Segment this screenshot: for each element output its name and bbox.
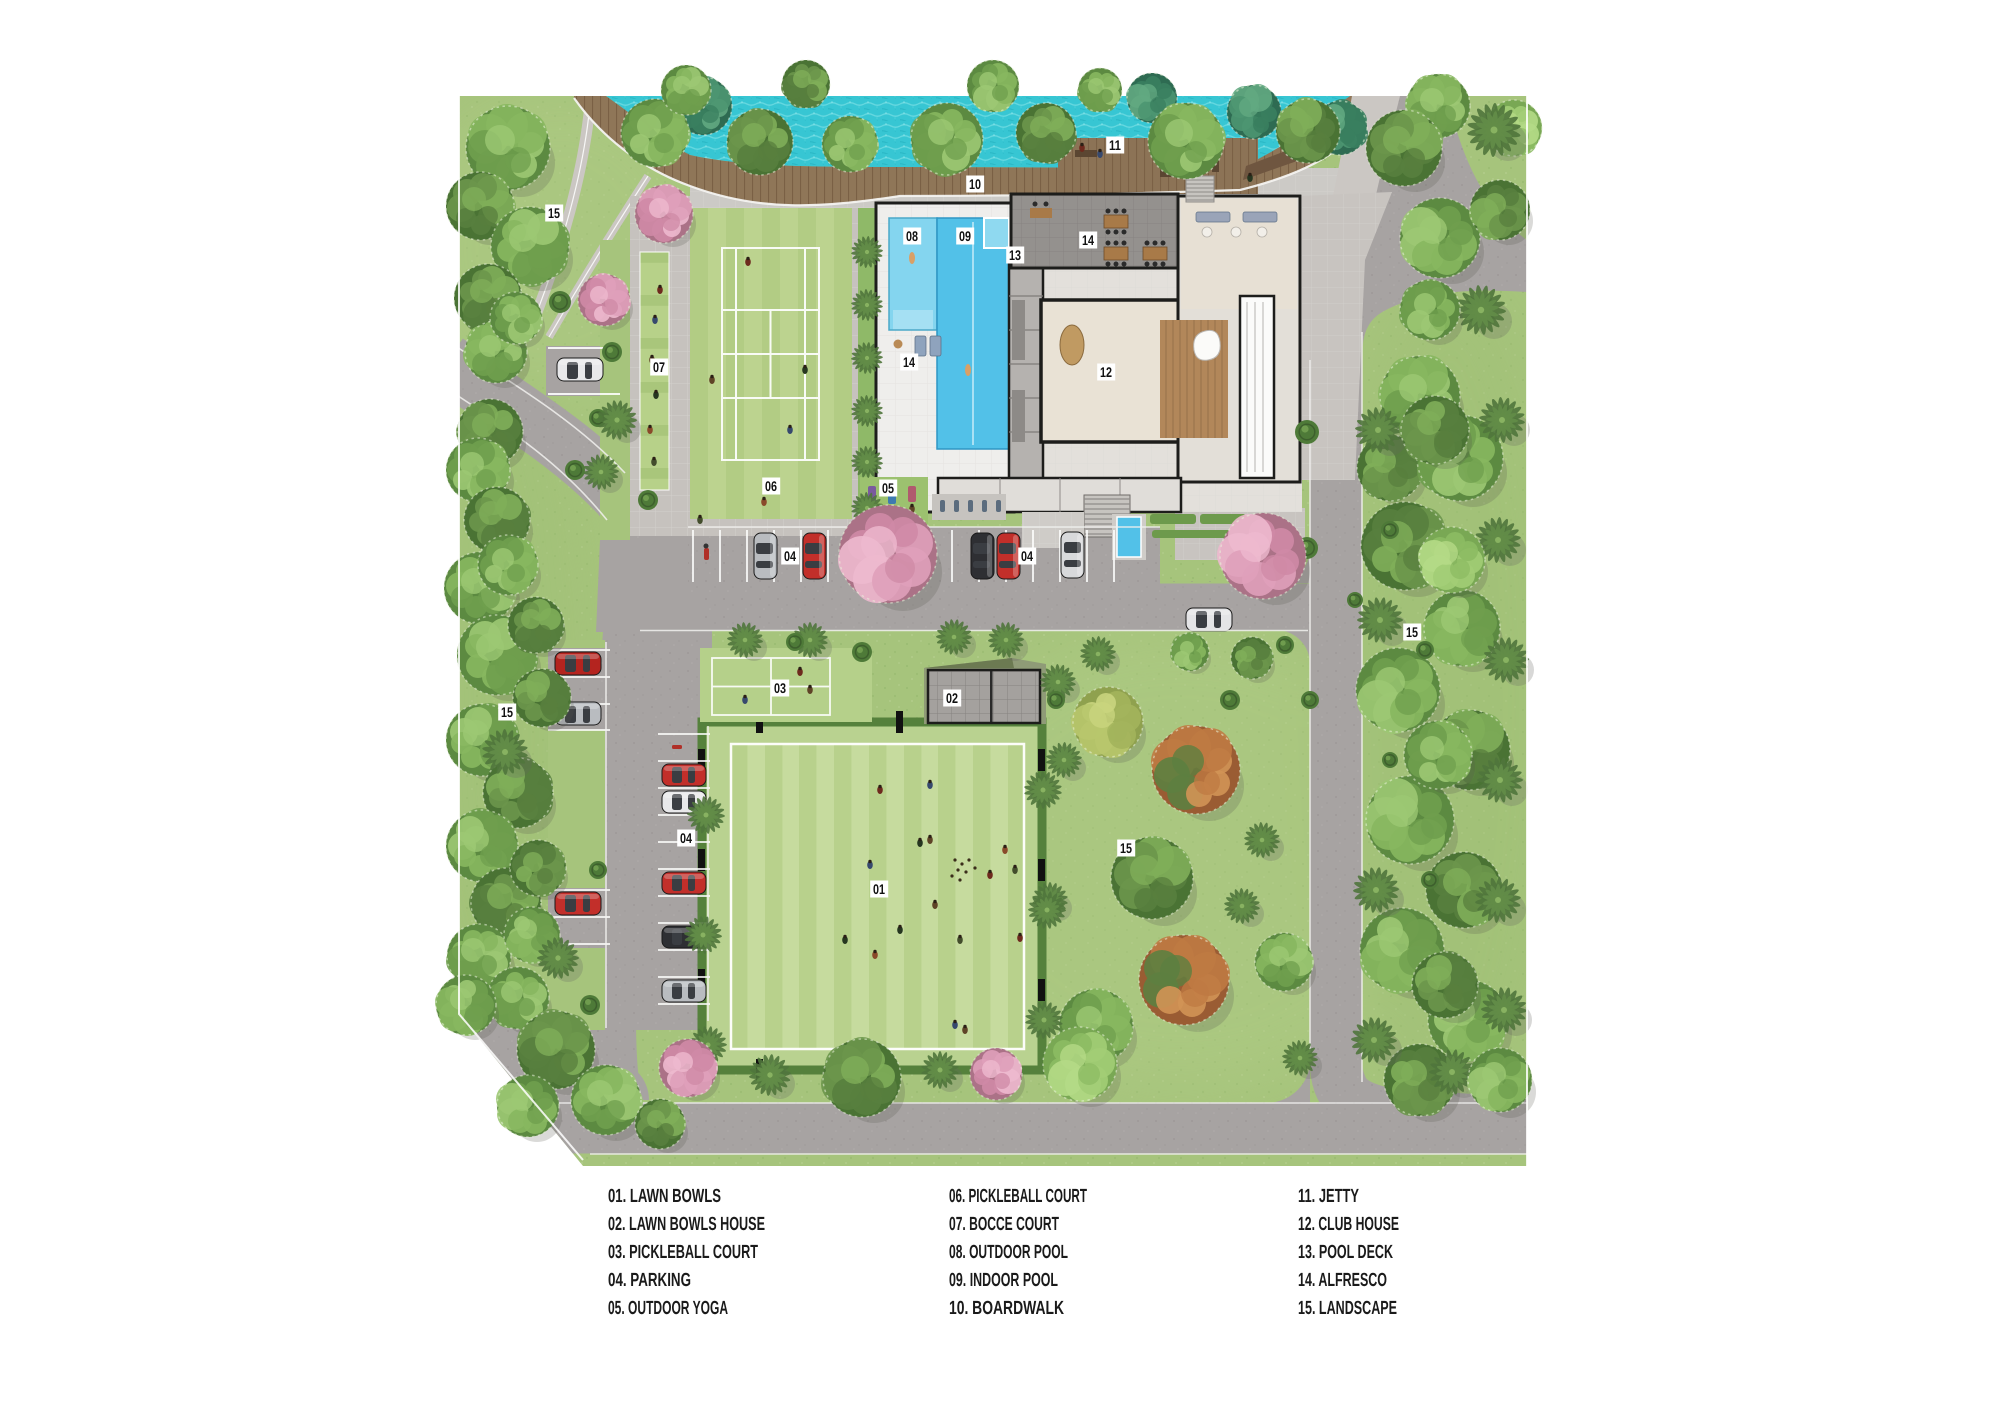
svg-text:12: 12 [1100, 364, 1112, 380]
svg-text:06. PICKLEBALL COURT: 06. PICKLEBALL COURT [949, 1186, 1087, 1207]
svg-text:01. LAWN BOWLS: 01. LAWN BOWLS [608, 1186, 721, 1207]
svg-text:06: 06 [765, 478, 777, 494]
svg-text:08. OUTDOOR POOL: 08. OUTDOOR POOL [949, 1242, 1068, 1263]
svg-text:14. ALFRESCO: 14. ALFRESCO [1298, 1270, 1387, 1291]
svg-text:04. PARKING: 04. PARKING [608, 1270, 691, 1291]
svg-text:04: 04 [680, 830, 692, 846]
svg-text:01: 01 [873, 881, 885, 897]
svg-text:12. CLUB HOUSE: 12. CLUB HOUSE [1298, 1214, 1399, 1235]
svg-text:10. BOARDWALK: 10. BOARDWALK [949, 1298, 1064, 1319]
svg-text:15: 15 [1120, 840, 1132, 856]
svg-text:11: 11 [1109, 137, 1121, 153]
svg-text:15: 15 [501, 704, 513, 720]
svg-text:02. LAWN BOWLS HOUSE: 02. LAWN BOWLS HOUSE [608, 1214, 765, 1235]
svg-text:15: 15 [1406, 624, 1418, 640]
svg-text:05: 05 [882, 480, 894, 496]
svg-text:02: 02 [946, 690, 958, 706]
svg-text:09: 09 [959, 228, 971, 244]
svg-text:07: 07 [653, 359, 665, 375]
svg-text:04: 04 [1021, 548, 1033, 564]
svg-text:14: 14 [903, 354, 915, 370]
svg-text:09. INDOOR POOL: 09. INDOOR POOL [949, 1270, 1058, 1291]
svg-text:11. JETTY: 11. JETTY [1298, 1186, 1359, 1207]
svg-text:03. PICKLEBALL COURT: 03. PICKLEBALL COURT [608, 1242, 758, 1263]
svg-text:13: 13 [1009, 247, 1021, 263]
svg-text:05. OUTDOOR YOGA: 05. OUTDOOR YOGA [608, 1298, 728, 1319]
svg-text:03: 03 [774, 680, 786, 696]
svg-text:14: 14 [1082, 232, 1094, 248]
svg-text:04: 04 [784, 548, 796, 564]
svg-text:15. LANDSCAPE: 15. LANDSCAPE [1298, 1298, 1397, 1319]
svg-text:15: 15 [548, 205, 560, 221]
svg-text:07. BOCCE COURT: 07. BOCCE COURT [949, 1214, 1059, 1235]
svg-text:10: 10 [969, 176, 981, 192]
svg-text:13. POOL DECK: 13. POOL DECK [1298, 1242, 1393, 1263]
svg-text:08: 08 [906, 228, 918, 244]
